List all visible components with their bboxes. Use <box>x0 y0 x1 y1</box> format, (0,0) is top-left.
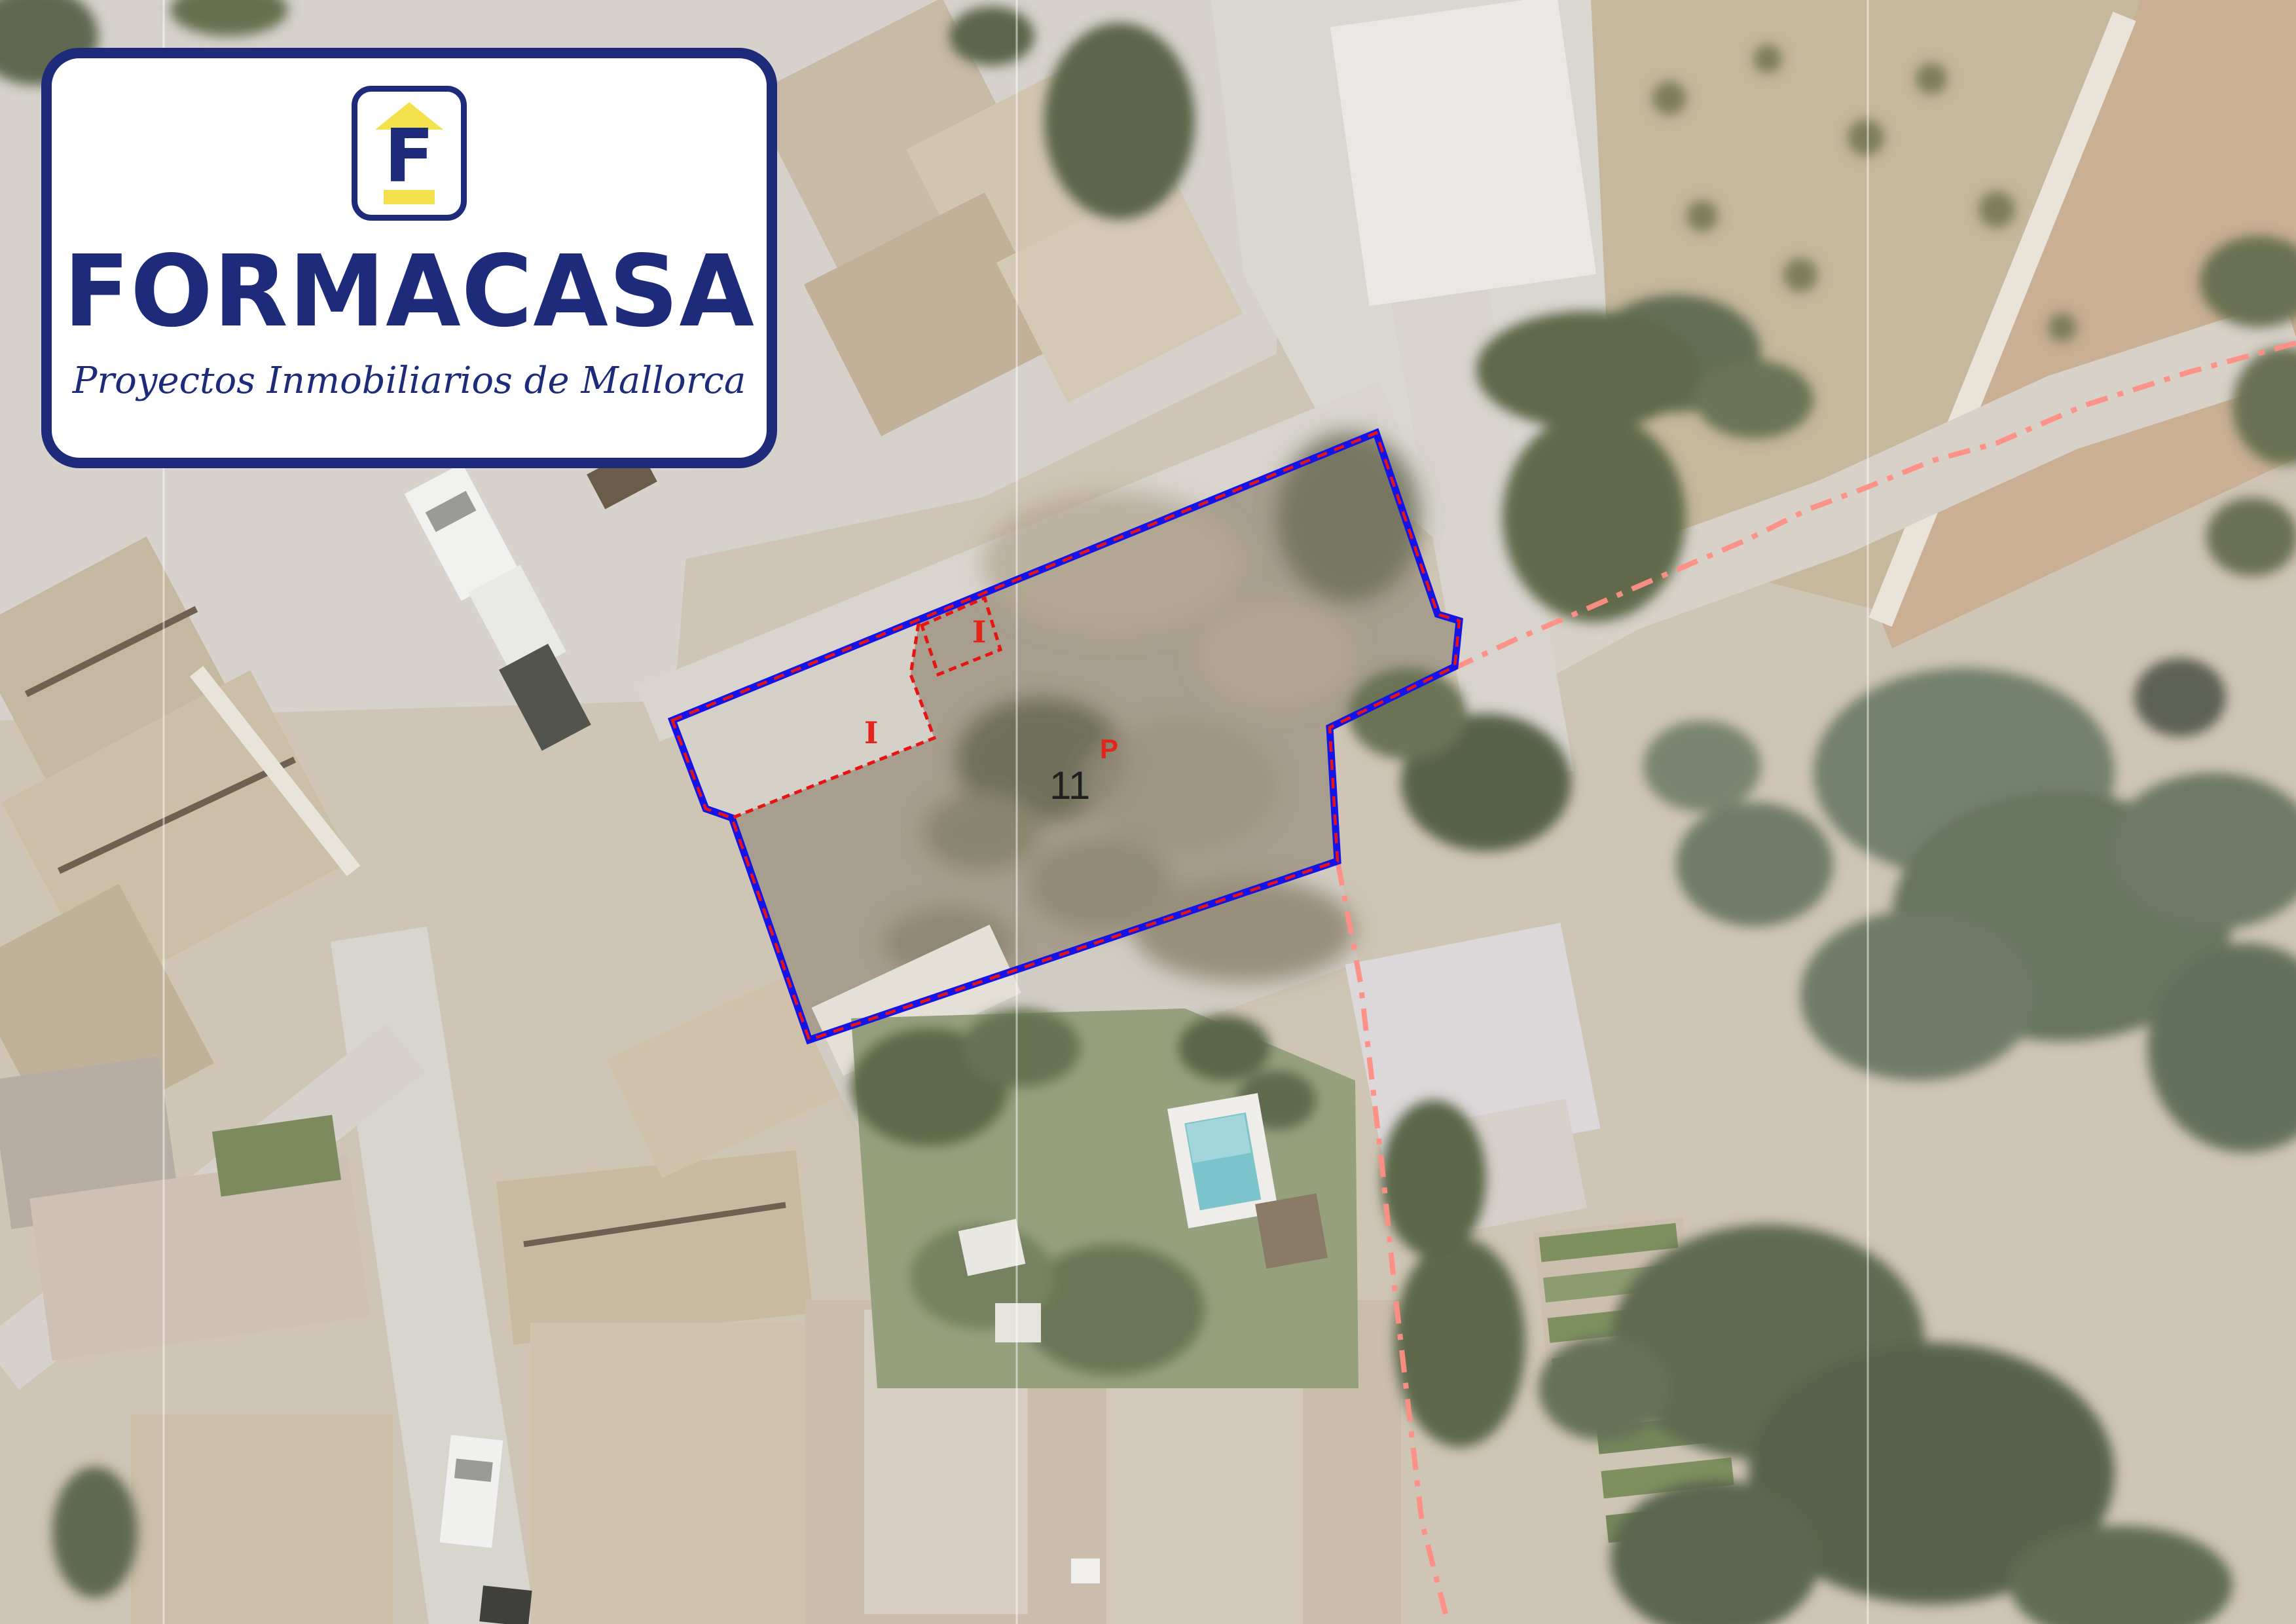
emblem-base-bar-icon <box>384 190 435 204</box>
shrub <box>2048 313 2077 342</box>
tree-cluster <box>1381 1100 1486 1257</box>
courtyard <box>131 1414 393 1624</box>
tree-cluster <box>1503 413 1686 622</box>
tree-cluster <box>1476 311 1699 429</box>
aerial-map-view: 11 P I I F FORMACASA Proyectos Inmobilia… <box>0 0 2296 1624</box>
i-label-small-rect: I <box>972 614 987 650</box>
tree-cluster <box>1539 1336 1669 1441</box>
formacasa-logo-card: F FORMACASA Proyectos Inmobiliarios de M… <box>41 48 777 468</box>
tree-cluster <box>1643 720 1761 812</box>
shrub <box>1753 45 1782 73</box>
car-on-street-dark <box>479 1585 532 1624</box>
courtyard <box>530 1323 845 1624</box>
brand-tagline: Proyectos Inmobiliarios de Mallorca <box>73 360 746 402</box>
tree-cluster <box>1349 668 1467 760</box>
garden-tree <box>962 1008 1080 1087</box>
emblem-letter: F <box>384 126 435 188</box>
shrub <box>1916 63 1947 94</box>
shrub <box>1686 200 1718 232</box>
shrub <box>1978 191 2015 228</box>
pool-property <box>851 1008 1358 1388</box>
palm-tree <box>1178 1015 1270 1080</box>
tree-cluster <box>1044 23 1195 219</box>
building-roof <box>496 1151 813 1345</box>
scrub-patch <box>1198 602 1355 707</box>
tree-cluster <box>1800 910 2036 1080</box>
tree-cluster <box>2206 498 2296 576</box>
formacasa-emblem-icon: F <box>352 86 467 221</box>
i-label-inner-area: I <box>864 715 879 750</box>
scrub-bush <box>923 792 1041 871</box>
small-white-object <box>1071 1559 1100 1583</box>
scrub-tree <box>1277 432 1421 602</box>
tree-cluster <box>52 1467 137 1598</box>
tree-cluster <box>1676 802 1833 927</box>
car-windshield <box>454 1458 493 1482</box>
tree-cluster <box>949 7 1034 65</box>
brand-name: FORMACASA <box>64 242 755 341</box>
shrub <box>1652 81 1686 115</box>
tree-cluster <box>1394 1238 1525 1447</box>
shrub <box>1783 258 1817 292</box>
shrub <box>1848 119 1884 156</box>
scrub-patch <box>982 491 1244 635</box>
pergola <box>1255 1193 1328 1268</box>
parcel-number-label: 11 <box>1049 764 1090 807</box>
p-label: P <box>1100 733 1118 764</box>
round-tree <box>2134 658 2226 737</box>
tree-cluster <box>1696 360 1813 439</box>
terrace-slab <box>995 1303 1041 1342</box>
white-building <box>1330 0 1596 306</box>
